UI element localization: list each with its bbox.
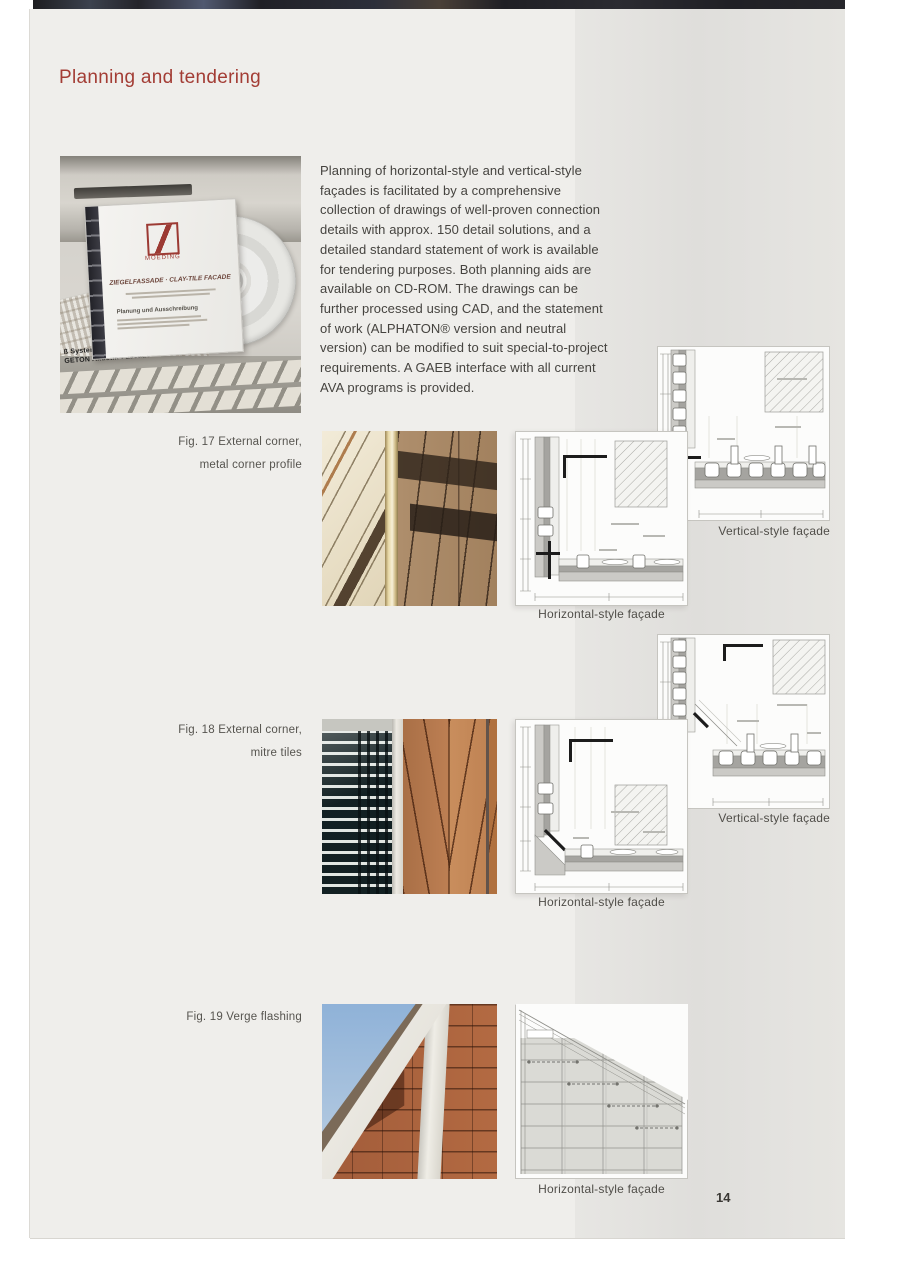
figure-18-horizontal-label: Horizontal-style façade — [515, 895, 688, 909]
figure-19-photo — [322, 1004, 497, 1179]
window-mullions — [358, 731, 392, 894]
scan-edge-strip — [33, 0, 845, 9]
figure-17-caption-line1: Fig. 17 External corner, — [110, 431, 302, 454]
cd-cover-subtitle: Planung und Ausschreibung — [117, 303, 233, 315]
figure-18-caption-line1: Fig. 18 External corner, — [110, 719, 302, 742]
page-number: 14 — [716, 1190, 730, 1205]
figure-18-horizontal-detail-drawing — [515, 719, 688, 894]
cd-cover-title: ZIEGELFASSADE · CLAY-TILE FACADE — [107, 273, 233, 287]
figure-18-caption-line2: mitre tiles — [110, 742, 302, 765]
figure-17-caption: Fig. 17 External corner, metal corner pr… — [110, 431, 302, 477]
soffit-strip — [322, 719, 403, 731]
mitre-corner-right-face — [449, 719, 486, 894]
side-wall-face — [489, 719, 497, 894]
figure-17-vertical-label: Vertical-style façade — [650, 524, 830, 538]
cd-jewel-case: MOEDING ZIEGELFASSADE · CLAY-TILE FACADE… — [84, 198, 244, 360]
figure-18-vertical-label: Vertical-style façade — [650, 811, 830, 825]
scanned-brochure-page: Planning and tendering ß Systemhaus, Aac… — [0, 0, 920, 1264]
figure-19-gable-drawing — [515, 1004, 688, 1179]
figure-17-photo — [322, 431, 497, 606]
figure-19-caption: Fig. 19 Verge flashing — [110, 1006, 302, 1029]
moeding-logo — [146, 222, 180, 256]
page-title: Planning and tendering — [59, 67, 261, 89]
page-background: Planning and tendering ß Systemhaus, Aac… — [30, 9, 845, 1238]
figure-19-horizontal-label: Horizontal-style façade — [515, 1182, 688, 1196]
corner-left-face — [322, 431, 385, 606]
figure-18-caption: Fig. 18 External corner, mitre tiles — [110, 719, 302, 765]
figure-17-horizontal-detail-drawing — [515, 431, 688, 606]
metal-corner-profile — [385, 431, 398, 606]
intro-paragraph: Planning of horizontal-style and vertica… — [320, 161, 617, 397]
figure-19-caption-line1: Fig. 19 Verge flashing — [110, 1006, 302, 1029]
mitre-corner-left-face — [403, 719, 449, 894]
figure-18-photo — [322, 719, 497, 894]
figure-17-horizontal-label: Horizontal-style façade — [515, 607, 688, 621]
cd-rom-photo: ß Systemhaus, Aachen GETON Akustik-Fassa… — [60, 156, 301, 413]
wall-edge-strip — [392, 719, 403, 894]
figure-17-caption-line2: metal corner profile — [110, 454, 302, 477]
corner-joint-line — [448, 719, 450, 894]
